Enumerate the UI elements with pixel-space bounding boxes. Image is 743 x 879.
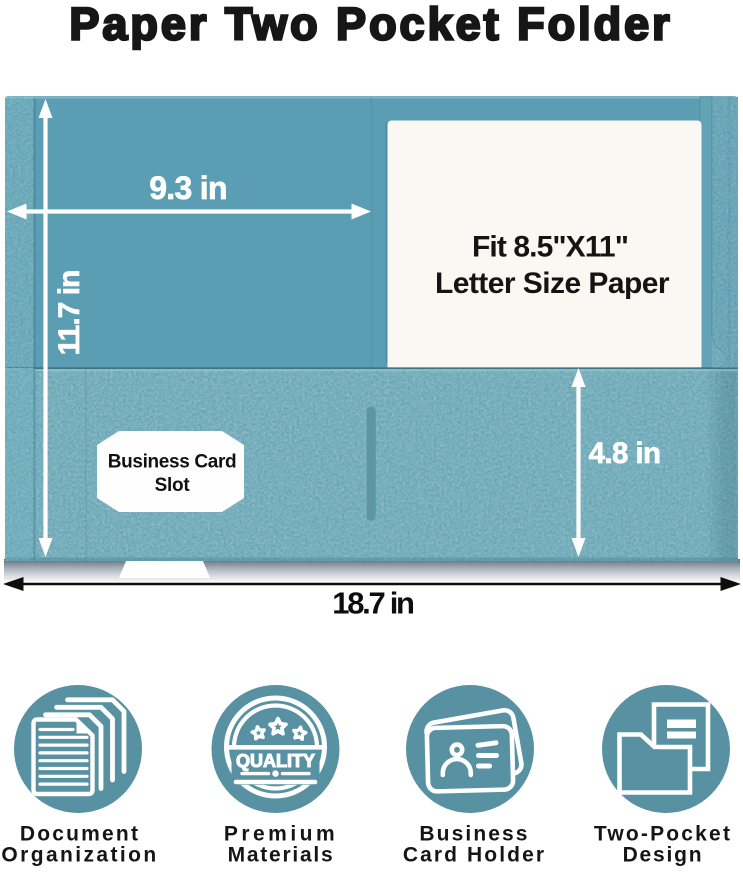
svg-text:Premium: Premium: [224, 823, 338, 846]
svg-text:Paper Two Pocket Folder: Paper Two Pocket Folder: [69, 0, 672, 50]
svg-text:Letter Size Paper: Letter Size Paper: [435, 267, 670, 300]
svg-text:Document: Document: [20, 823, 140, 846]
svg-text:Business: Business: [419, 823, 529, 846]
svg-text:11.7 in: 11.7 in: [53, 271, 86, 356]
svg-text:Materials: Materials: [228, 844, 335, 867]
svg-text:Two-Pocket: Two-Pocket: [594, 823, 732, 846]
svg-text:Card Holder: Card Holder: [403, 844, 546, 867]
svg-text:9.3 in: 9.3 in: [149, 170, 227, 206]
svg-text:Fit 8.5"X11": Fit 8.5"X11": [472, 231, 628, 264]
svg-text:Design: Design: [623, 844, 704, 867]
svg-text:Organization: Organization: [1, 844, 158, 867]
svg-text:QUALITY: QUALITY: [236, 751, 315, 771]
svg-text:18.7 in: 18.7 in: [332, 586, 414, 621]
svg-text:4.8 in: 4.8 in: [589, 437, 661, 470]
svg-text:Business Card: Business Card: [108, 452, 237, 473]
svg-text:Slot: Slot: [155, 475, 191, 496]
